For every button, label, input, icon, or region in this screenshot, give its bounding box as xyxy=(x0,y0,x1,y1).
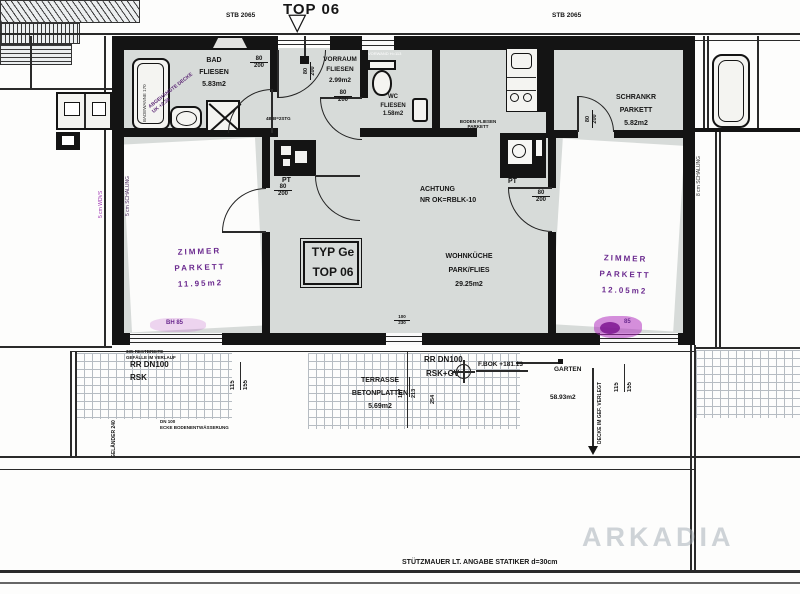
stb-label-left: STB 2065 xyxy=(226,12,255,19)
neighborR-vline1 xyxy=(703,36,705,131)
door-label-zimmerL: 80200 xyxy=(274,184,292,197)
room-label-vorraum: VORRAUM FLIESEN 2.99m2 xyxy=(312,56,368,84)
fbok-label: F.BOK +181.13 xyxy=(478,361,523,368)
note-gelaender: GELÄNDER 240 xyxy=(112,406,117,458)
door-label-schrank: 80200 xyxy=(586,110,598,128)
retaining-wall-label: STÜTZMAUER LT. ANGABE STATIKER d=30cm xyxy=(402,559,558,567)
marker-window-right-label: 85 xyxy=(624,319,631,326)
room-label-wohnkueche: WOHNKÜCHE PARK/FLIES 29.25m2 xyxy=(436,253,502,288)
slope-arrow-line xyxy=(592,368,594,448)
survey-point-icon: ▽ xyxy=(288,10,306,37)
site-line-1 xyxy=(0,456,800,458)
note-daemmung-c: 8 cm SCHALUNG xyxy=(697,138,702,196)
wall-kitchen-right xyxy=(538,48,546,112)
wall-zimmerL-b xyxy=(262,232,270,333)
room-label-zimmer-right: ZIMMER PARKETT 12.05m2 xyxy=(584,254,665,298)
left-wall-vline2 xyxy=(75,352,77,458)
neighbor-counter xyxy=(56,92,112,130)
room-label-schrankraum: SCHRANKR PARKETT 5.82m2 xyxy=(600,94,672,127)
terrace-top-line xyxy=(70,351,695,352)
wall-schrank-bottom-b xyxy=(614,130,683,138)
rr-mid-line1: RR DN100 xyxy=(424,356,463,365)
note-stiege: 4B B=2STG xyxy=(266,116,291,121)
note-achtung: ACHTUNG NR OK=RBLK-10 xyxy=(420,186,476,205)
neighborR-vline2 xyxy=(707,36,709,131)
win-dim-left-line xyxy=(240,362,241,390)
note-entwaesserung: ECKE BODENENTWÄSSERUNG xyxy=(160,425,229,430)
toilet-bowl xyxy=(372,70,392,96)
left-wall-vline1 xyxy=(70,352,72,458)
retaining-wall-line xyxy=(0,570,800,573)
neighbor-bathtub xyxy=(712,54,750,128)
stb-label-right: STB 2065 xyxy=(552,12,581,19)
terrace-door-label: 100230 xyxy=(394,315,410,325)
site-line-2 xyxy=(0,469,694,470)
vent-icon xyxy=(213,38,247,48)
win-dim-right-h: 155 xyxy=(627,362,633,392)
wall-right xyxy=(683,36,695,345)
wall-top-left xyxy=(112,36,278,50)
window-grate-right xyxy=(0,44,72,65)
ground-line-left xyxy=(0,346,112,348)
kitchen-sink xyxy=(511,53,532,69)
shaft-left xyxy=(274,140,316,176)
site-line-3 xyxy=(0,582,800,584)
note-boden: BODEN FLIESEN PARKETT xyxy=(452,119,504,129)
marker-window-right-core xyxy=(600,322,620,334)
zimmer-left-highlight xyxy=(122,138,265,333)
toilet-tank xyxy=(368,60,396,70)
wall-schrank-left xyxy=(546,48,554,137)
stove-burner-2 xyxy=(523,93,532,102)
room-label-zimmer-left: ZIMMER PARKETT 11.95m2 xyxy=(159,247,240,291)
stove-burner-1 xyxy=(510,93,519,102)
survey-stem xyxy=(304,36,306,56)
wall-bottom-b xyxy=(222,333,386,345)
pt-label-left: PT xyxy=(282,177,291,185)
dim-254: 254 xyxy=(431,382,437,404)
dim-213: 213 xyxy=(412,376,418,398)
neighborR-wall xyxy=(695,128,800,132)
note-dn100: DN 100 xyxy=(160,419,175,424)
bath-sink xyxy=(170,106,202,130)
kitchen-counter xyxy=(506,48,538,112)
wall-bottom-d xyxy=(678,333,695,345)
corridor-line-top xyxy=(0,33,800,35)
neighbor-left-hline xyxy=(0,88,114,90)
win-dim-right-line xyxy=(624,364,625,392)
door-label-wc: 80200 xyxy=(334,90,352,103)
slope-arrow-label: DECKE IM GEF. VERLEGT xyxy=(598,374,603,444)
shaft-kitchen xyxy=(500,133,546,178)
survey-square xyxy=(300,56,309,64)
dim-mid-line xyxy=(409,377,410,397)
neighbor-left-vline xyxy=(30,36,32,88)
terrace-dim-vline xyxy=(407,352,408,428)
watermark: ARKADIA xyxy=(582,522,735,552)
zimmer-right-highlight xyxy=(551,138,684,331)
rr-left-line1: RR DN100 xyxy=(130,361,169,370)
dim-167: 167 xyxy=(399,376,405,398)
door-label-zimmerR: 80200 xyxy=(532,190,550,203)
wall-zimmerR-a xyxy=(548,137,556,188)
terrace-door xyxy=(386,333,422,345)
window-grate-left xyxy=(0,0,140,23)
rr-mid-tick xyxy=(558,359,563,364)
wall-bottom-a xyxy=(112,333,130,345)
neighborR-vline3 xyxy=(757,36,759,131)
fbok-underline xyxy=(476,370,528,372)
wall-zimmerL-a xyxy=(262,137,270,188)
garden-grid-right xyxy=(696,350,800,418)
room-label-garten-area: 58.93m2 xyxy=(550,394,576,401)
win-dim-left-h: 155 xyxy=(243,360,249,390)
wall-wc-right xyxy=(432,50,440,137)
bathtub-label: BADEWANNE 170 xyxy=(143,66,148,122)
room-label-garten: GARTEN xyxy=(554,366,581,373)
marker-window-left-label: BH 85 xyxy=(166,320,183,327)
wall-left xyxy=(112,36,124,345)
fbok-cross-h xyxy=(452,371,475,373)
slope-arrow-head xyxy=(588,446,598,455)
neighborR-vline4 xyxy=(715,132,717,348)
neighborR-vline5 xyxy=(719,132,721,348)
wall-zimmerR-b xyxy=(548,232,556,333)
note-daemmung-b: 5 cm SCHALUNG xyxy=(126,158,131,216)
window-left xyxy=(130,333,222,345)
wall-bottom-c xyxy=(422,333,600,345)
note-daemmung-a: 5 cm WDVS xyxy=(99,160,104,218)
floorplan-canvas: BADEWANNE 170 xyxy=(0,0,800,594)
ground-line-right xyxy=(695,347,800,349)
door-label-bad: 80200 xyxy=(250,56,268,69)
note-vorwand: VORWAND H=113 xyxy=(368,52,401,56)
rr-left-line2: RSK xyxy=(130,374,147,383)
window-top xyxy=(362,36,394,50)
corridor-line-top-right xyxy=(695,40,800,41)
neighbor-appliance xyxy=(56,132,80,150)
unit-type-box: TYP Ge TOP 06 xyxy=(303,241,359,285)
outer-wall-line-left xyxy=(104,36,106,347)
note-restbreite: 335 RESTBREITE xyxy=(126,349,163,354)
pt-label-kitchen: PT xyxy=(508,178,517,186)
room-label-wc: WC FLIESEN 1.58m2 xyxy=(368,94,418,118)
win-dim-left-w: 115 xyxy=(230,360,236,390)
wall-niche-stub xyxy=(432,128,477,137)
wall-wc-bottom xyxy=(360,128,440,137)
win-dim-right-w: 115 xyxy=(614,362,620,392)
